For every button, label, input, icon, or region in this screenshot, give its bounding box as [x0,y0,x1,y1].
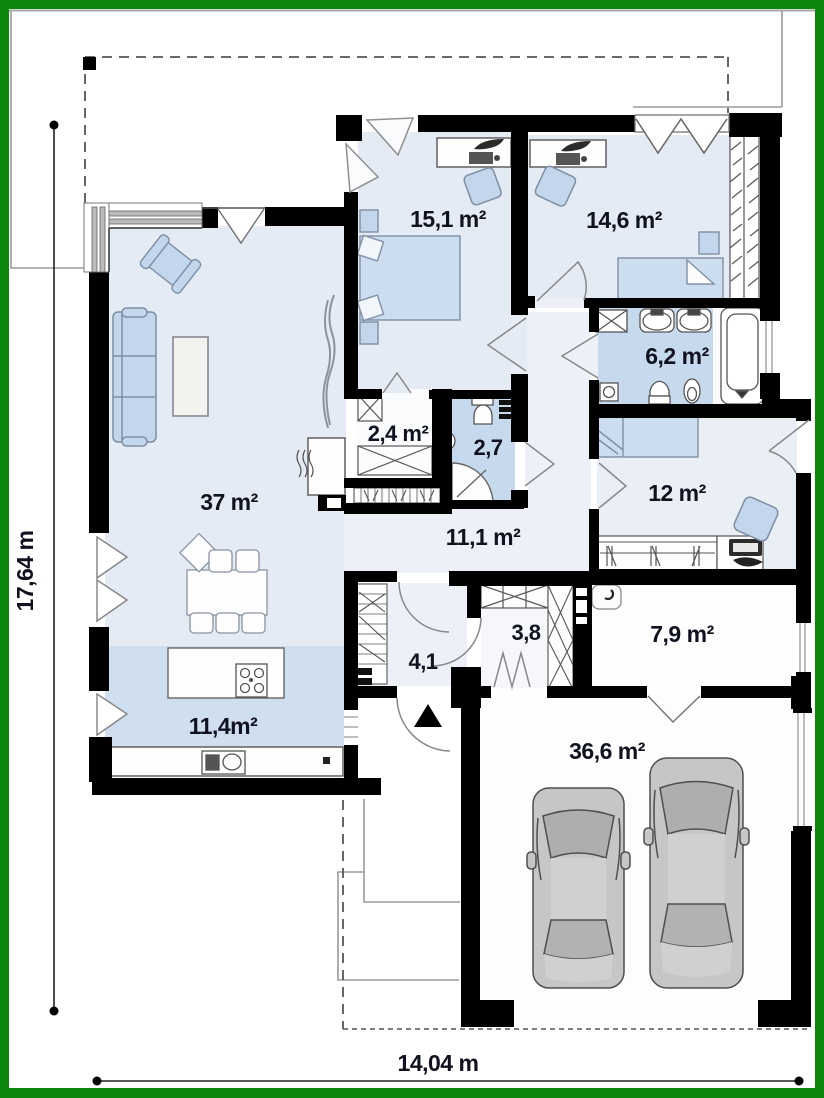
svg-text:4,1: 4,1 [408,649,437,674]
svg-text:36,6 m²: 36,6 m² [569,738,646,764]
svg-text:6,2 m²: 6,2 m² [645,343,709,369]
svg-text:11,4m²: 11,4m² [189,713,258,739]
svg-text:2,4 m²: 2,4 m² [368,421,429,446]
svg-text:15,1 m²: 15,1 m² [410,206,487,232]
svg-text:37 m²: 37 m² [200,489,258,515]
svg-text:7,9 m²: 7,9 m² [650,621,714,647]
svg-text:12 m²: 12 m² [648,480,706,506]
svg-text:14,04 m: 14,04 m [398,1050,479,1076]
svg-text:11,1 m²: 11,1 m² [446,524,521,550]
svg-text:3,8: 3,8 [511,620,540,645]
svg-text:2,7: 2,7 [473,435,502,460]
svg-text:14,6 m²: 14,6 m² [586,207,663,233]
svg-text:17,64 m: 17,64 m [12,531,38,612]
